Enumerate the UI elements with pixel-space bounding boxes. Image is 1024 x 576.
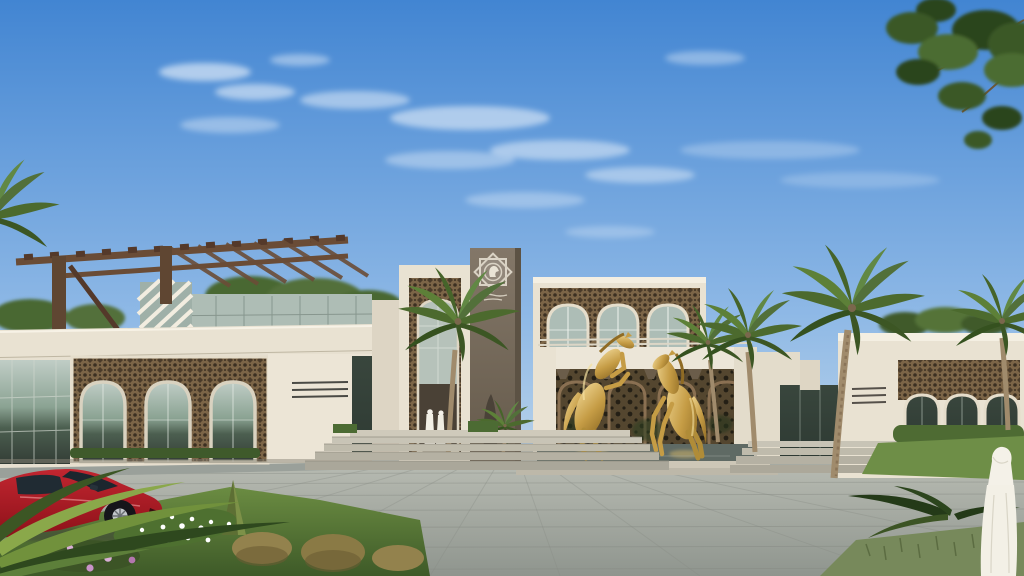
curtain-wall-glass [0,360,70,464]
planter [333,424,357,433]
cloud [780,172,940,188]
cloud [465,192,585,208]
horse-pavilion [533,338,757,462]
scene-canvas [0,0,1024,576]
gallery-arch-window [648,305,688,354]
planter [468,421,498,432]
pergola-post [52,256,66,334]
white-thobe [981,485,1017,576]
cloud [180,117,280,133]
link-glass [780,385,838,458]
cloud [490,140,630,160]
cloud [159,63,251,81]
architectural-rendering: Daytime exterior rendering of a contempo… [0,0,1024,576]
base-hedge [70,448,260,458]
cloud [270,54,330,66]
cloud [215,84,295,100]
gallery-cornice [533,277,706,283]
cloud [565,226,655,238]
cloud [390,106,550,130]
link-parapet [800,360,820,390]
cloud [585,167,695,183]
cloud [665,51,745,65]
right-wing-cornice [838,333,1024,341]
left-arcade [72,357,268,463]
gallery-arch-window [548,305,588,354]
pergola-post [160,246,172,304]
cloud [680,141,860,159]
cloud [300,91,410,109]
